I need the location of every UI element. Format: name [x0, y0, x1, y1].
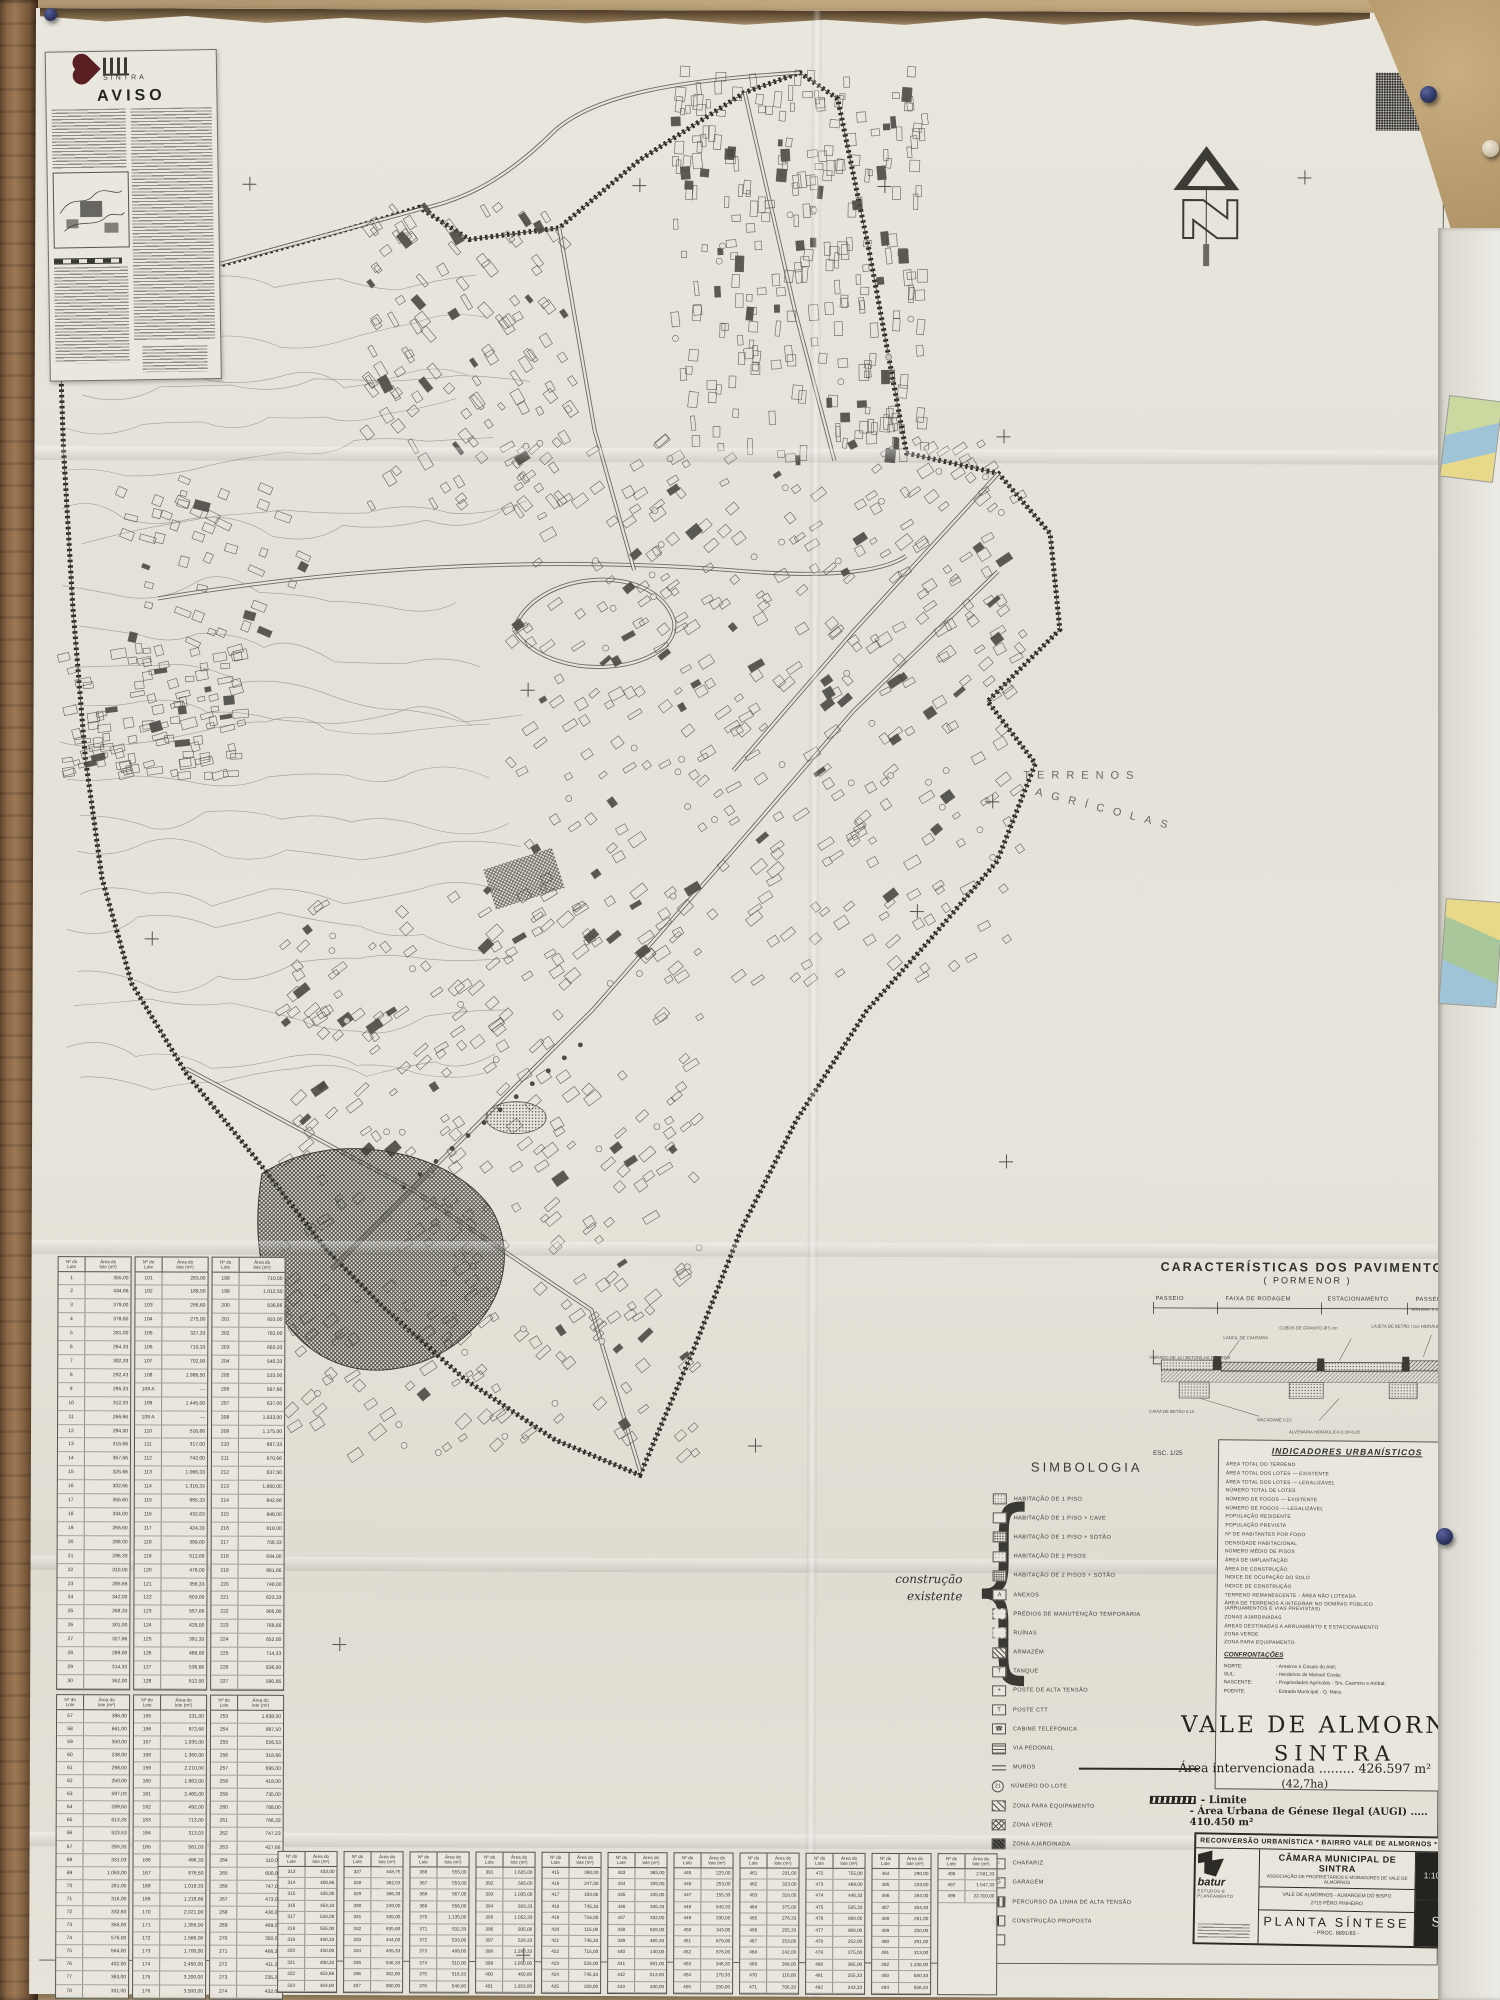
lot-area: 665,33 — [162, 1495, 207, 1508]
lot-number: 321 — [278, 1958, 305, 1969]
lot-table-row: 221623,33 — [211, 1592, 283, 1606]
lot-area: 818,00 — [239, 1523, 284, 1536]
lot-table-row: 469288,00 — [740, 1959, 798, 1971]
lot-number: 269 — [210, 1920, 237, 1932]
lot-number: 499 — [938, 1892, 965, 1903]
lot-number: 464 — [740, 1902, 767, 1913]
lot-area: 22.310,00 — [965, 1892, 996, 1903]
lot-area-table: Nº doLoteÁrea dolote (m²)472755,00473469… — [805, 1853, 865, 1995]
lot-number: 160 — [134, 1775, 161, 1787]
lot-number: 488 — [872, 1914, 899, 1925]
legend-swatch-lines-icon — [992, 1743, 1006, 1754]
lot-table-row: 120478,00 — [135, 1564, 207, 1578]
lot-number: 320 — [278, 1946, 305, 1957]
lot-area: 536,66 — [161, 1661, 206, 1674]
indicator-label: ZONAS AJARDINADAS — [1224, 1615, 1281, 1621]
lot-number: 213 — [212, 1481, 239, 1494]
lot-area: 1.962,00 — [161, 1775, 206, 1787]
lot-table-row: 397528,33 — [476, 1936, 534, 1948]
lot-number: 224 — [211, 1634, 238, 1647]
lot-table-row: 494556,33 — [872, 1983, 930, 1995]
lot-number: 472 — [806, 1868, 833, 1879]
lot-area: 469,00 — [833, 1880, 864, 1891]
lot-table-row: 471706,33 — [740, 1982, 798, 1994]
lot-number: 217 — [212, 1536, 239, 1549]
lot-area-header: Área dolote (m²) — [900, 1854, 931, 1868]
lot-area: 1.035,00 — [161, 1736, 206, 1748]
lot-area: 378,60 — [85, 1313, 130, 1326]
legend-item-label: HABITAÇÃO DE 1 PISO + SÓTÃO — [1014, 1534, 1112, 1540]
lot-area: 313,03 — [161, 1828, 206, 1840]
pavement-note: ALVENARIA HIDRÁULICA 0,30×0,20 — [1289, 1430, 1360, 1435]
lot-area: 411,25 — [237, 1959, 282, 1971]
lot-number: 447 — [674, 1891, 701, 1902]
lot-table-row: 394928,33 — [476, 1901, 534, 1913]
lot-area: 1.547,33 — [965, 1880, 996, 1891]
legend-swatch-muro-icon — [992, 1765, 1006, 1770]
lot-number: 423 — [542, 1959, 569, 1970]
lot-table-row: 4921.238,00 — [872, 1960, 930, 1972]
lot-table-row: 317528,00 — [278, 1912, 336, 1924]
lot-table-row: 376548,00 — [410, 1981, 468, 1993]
lot-number: 266 — [210, 1880, 237, 1892]
legend-item-label: ARMAZÉM — [1013, 1650, 1044, 1656]
lot-number-header: Nº doLote — [211, 1696, 238, 1710]
lot-number: 449 — [674, 1913, 701, 1924]
lot-area: 3.500,00 — [160, 1985, 205, 1997]
lot-area: 288,00 — [85, 1536, 130, 1549]
legend-item: PERCURSO DA LINHA DE ALTA TENSÃO — [991, 1892, 1221, 1912]
lot-number: 267 — [210, 1893, 237, 1905]
lot-area: 327,66 — [84, 1633, 129, 1646]
lot-area: 450,00 — [305, 1946, 336, 1957]
lot-table-row: 375516,33 — [410, 1970, 468, 1982]
lot-table-row: 440140,00 — [608, 1947, 666, 1959]
lot-number: 108 A — [135, 1383, 162, 1396]
lot-area: 652,00 — [238, 1634, 283, 1647]
lot-table-row: 8292,43 — [58, 1369, 130, 1383]
indicator-label: ÍNDICE DE CONSTRUÇÃO — [1225, 1584, 1292, 1590]
brace-label-line1: construção — [892, 1571, 962, 1588]
lot-number: 445 — [674, 1868, 701, 1879]
lot-table-row: 70281,00 — [56, 1880, 128, 1893]
lot-number: 176 — [133, 1985, 160, 1997]
lot-area: 908,00 — [833, 1914, 864, 1925]
lot-number: 58 — [57, 1723, 84, 1735]
lot-table-row: 223768,66 — [211, 1620, 283, 1634]
lot-number: 473 — [806, 1880, 833, 1891]
lot-number: 436 — [608, 1902, 635, 1913]
lot-table-row: 219881,66 — [212, 1564, 284, 1578]
lot-area: 189,50 — [162, 1286, 207, 1299]
lot-number: 415 — [542, 1867, 569, 1878]
lot-number: 109 — [135, 1397, 162, 1410]
white-side-panel — [1438, 228, 1500, 2000]
aviso-paragraph — [52, 108, 127, 169]
lot-table-row: 227590,66 — [211, 1675, 283, 1689]
lot-number: 62 — [57, 1775, 84, 1787]
lot-number: 258 — [211, 1776, 238, 1788]
lot-number: 4 — [58, 1313, 85, 1326]
legend-item-label: TANQUE — [1013, 1669, 1038, 1675]
lot-area: 1.316,33 — [162, 1481, 207, 1494]
lot-area: 330,00 — [701, 1914, 732, 1925]
lot-table-row: 122603,00 — [134, 1592, 206, 1606]
lot-number: 112 — [135, 1453, 162, 1466]
lot-number: 399 — [476, 1958, 503, 1969]
lot-table-row: 203660,33 — [212, 1342, 284, 1356]
lot-table-row: 109 A— — [135, 1411, 207, 1425]
lot-area: 225,00 — [701, 1868, 732, 1879]
lot-number: 157 — [134, 1736, 161, 1748]
lot-area: 1.638,00 — [238, 1710, 283, 1722]
lot-area: 716,00 — [569, 1913, 600, 1924]
lot-table-row: 67293,33 — [57, 1841, 129, 1854]
lot-table-row: 5281,00 — [58, 1327, 130, 1341]
lot-table-row: 400460,00 — [476, 1970, 534, 1982]
lot-number: 163 — [134, 1815, 161, 1827]
lot-area: 352,00 — [84, 1675, 129, 1688]
pavement-section-label: ESTACIONAMENTO — [1327, 1297, 1388, 1303]
lot-number: 434 — [608, 1879, 635, 1890]
lot-number: 481 — [806, 1971, 833, 1982]
lot-number: 71 — [56, 1893, 83, 1905]
lot-table-row: 372533,00 — [410, 1935, 468, 1947]
lot-table-row: 1763.500,00 — [133, 1985, 205, 1998]
lot-table-row: 470116,00 — [740, 1971, 798, 1983]
legend-item-label: PRÉDIOS DE MANUTENÇÃO TEMPORÁRIA — [1013, 1611, 1140, 1617]
legend-swatch-dots-icon — [993, 1551, 1007, 1562]
lot-area-table: Nº doLoteÁrea dolote (m²)433365,00434335… — [607, 1852, 667, 1994]
lot-table-row: 367553,00 — [410, 1878, 468, 1890]
lot-area: 325,66 — [85, 1466, 130, 1479]
lot-area: 290,00 — [701, 1982, 732, 1993]
lot-table-row: 322453,66 — [278, 1969, 336, 1981]
lot-table-row: 104275,00 — [135, 1314, 207, 1328]
lot-number-header: Nº doLote — [939, 1854, 966, 1868]
lot-table-row: 124428,00 — [134, 1620, 206, 1634]
lot-table-row: 320450,00 — [278, 1946, 336, 1958]
lot-table-row: 2081.633,00 — [212, 1411, 284, 1425]
lot-area: 380,00 — [569, 1867, 600, 1878]
lot-number: 11 — [58, 1411, 85, 1424]
lot-number: 219 — [212, 1564, 239, 1577]
pavement-note: VIBRADO DE 12 / BETONILHA DE AREIA — [1149, 1356, 1230, 1361]
lot-table-row: 126468,00 — [134, 1647, 206, 1661]
lot-number: 57 — [57, 1710, 84, 1722]
lot-number-header: Nº doLote — [411, 1852, 438, 1866]
lot-area: 354,33 — [899, 1903, 930, 1914]
lot-number: 255 — [211, 1736, 238, 1748]
lot-table-row: 416247,00 — [542, 1879, 600, 1891]
lot-number: 20 — [58, 1536, 85, 1549]
indicator-label: NÚMERO TOTAL DE LOTES — [1226, 1489, 1296, 1495]
lot-area: 876,50 — [160, 1867, 205, 1879]
lot-number: 271 — [210, 1946, 237, 1958]
lot-area: 1.445,00 — [162, 1397, 207, 1410]
lot-table-row: 1592.210,00 — [134, 1762, 206, 1775]
lot-number: 450 — [674, 1925, 701, 1936]
lot-area: 313,00 — [899, 1948, 930, 1959]
lot-area: 250,00 — [899, 1926, 930, 1937]
lot-table-row: 1991.012,50 — [212, 1286, 284, 1300]
lot-area: 427,66 — [238, 1841, 283, 1853]
lot-area: 233,00 — [899, 1880, 930, 1891]
lot-table-row: 484290,00 — [872, 1868, 930, 1880]
pavement-note: CUBOS DE GRANITO Ø 5 cm — [1279, 1326, 1337, 1331]
lot-number: 127 — [134, 1661, 161, 1674]
lot-number: 336 — [344, 1969, 371, 1980]
lot-area: 553,00 — [437, 1878, 468, 1889]
indicator-label: ÁREA TOTAL DOS LOTES — EXISTENTE — [1226, 1471, 1329, 1477]
lot-area-table: Nº doLoteÁrea dolote (m²)3911.625,003925… — [475, 1852, 535, 1994]
lot-area: 928,33 — [503, 1901, 534, 1912]
lot-number-header: Nº doLote — [873, 1854, 900, 1868]
lot-number: 16 — [58, 1480, 85, 1493]
lot-area: 512,66 — [162, 1550, 207, 1563]
lot-area: 1.986,50 — [162, 1369, 207, 1382]
lot-area: 465,33 — [635, 1936, 666, 1947]
lot-table-row: 392585,00 — [476, 1879, 534, 1891]
lot-number: 59 — [57, 1736, 84, 1748]
lot-area: 335,33 — [635, 1902, 666, 1913]
lot-table-row: 334485,33 — [344, 1946, 402, 1958]
lot-table-row: 57386,00 — [57, 1710, 129, 1723]
lot-number: 206 — [212, 1383, 239, 1396]
lot-area: 285,66 — [84, 1578, 129, 1591]
lot-number: 327 — [344, 1867, 371, 1878]
legend-swatch-glyphA-icon: A — [992, 1589, 1006, 1600]
lot-area: 872,66 — [161, 1723, 206, 1735]
lot-number: 322 — [278, 1969, 305, 1980]
lot-table-row: 123557,66 — [134, 1606, 206, 1620]
lot-area-header: Área dolote (m²) — [238, 1696, 283, 1710]
lot-number: 207 — [212, 1397, 239, 1410]
lot-area: 782,00 — [239, 1328, 284, 1341]
lot-number: 264 — [211, 1854, 238, 1866]
indicator-label: ÁREA DE TERRENOS A INTEGRAR NO DOMÍNIO P… — [1224, 1602, 1399, 1614]
lot-number: 205 — [212, 1370, 239, 1383]
lot-number: 323 — [278, 1980, 305, 1991]
aviso-paragraph — [131, 107, 216, 340]
lot-area: 836,00 — [238, 1662, 283, 1675]
lot-number: 419 — [542, 1913, 569, 1924]
lot-area: 478,00 — [162, 1564, 207, 1577]
lot-area-header: Área dolote (m²) — [702, 1853, 733, 1867]
batur-address — [1198, 1923, 1250, 1940]
lot-number: 469 — [740, 1959, 767, 1970]
lot-area: 365,00 — [833, 1960, 864, 1971]
lot-area: 425,00 — [305, 1889, 336, 1900]
underlying-colored-map — [1438, 898, 1500, 1008]
lot-number: 448 — [674, 1902, 701, 1913]
lot-number: 397 — [476, 1936, 503, 1947]
lot-area: 418,00 — [238, 1776, 283, 1788]
lot-table-row: 76402,00 — [56, 1958, 128, 1971]
lot-table-row: 17355,60 — [58, 1494, 130, 1508]
lot-number: 221 — [211, 1592, 238, 1605]
legend-swatch-hatch2-icon — [992, 1800, 1006, 1811]
lot-area: 533,00 — [437, 1935, 468, 1946]
lot-area: 555,00 — [437, 1867, 468, 1878]
lot-area: 1.018,33 — [160, 1880, 205, 1892]
lot-number: 211 — [212, 1453, 239, 1466]
lot-number: 265 — [210, 1867, 237, 1879]
lot-area-table: Nº doLoteÁrea dolote (m²)366555,00367553… — [409, 1851, 469, 1993]
lot-area: 391,33 — [161, 1634, 206, 1647]
lot-area-header: Área dolote (m²) — [240, 1258, 285, 1272]
lot-area-table: Nº doLoteÁrea dolote (m²)415380,00416247… — [541, 1852, 601, 1994]
indicator-label: TERRENO REMANESCENTE - ÁREA NÃO LOTEADA — [1225, 1593, 1356, 1599]
lot-number: 209 — [212, 1425, 239, 1438]
lot-table-row: 220740,00 — [211, 1578, 283, 1592]
lot-area: 747,00 — [237, 1880, 282, 1892]
lot-number: 214 — [212, 1495, 239, 1508]
lot-table-row: 1141.316,33 — [135, 1481, 207, 1495]
lot-area-header: Área dolote (m²) — [163, 1257, 208, 1271]
lot-number: 13 — [58, 1439, 85, 1452]
lot-area: 1.135,00 — [437, 1913, 468, 1924]
lot-table-row: 1753.200,00 — [133, 1972, 205, 1985]
lot-number: 318 — [278, 1923, 305, 1934]
legend-item-label: HABITAÇÃO DE 1 PISO — [1014, 1496, 1082, 1502]
indicator-label: NÚMERO DE FOGOS — EXISTENTE — [1226, 1497, 1318, 1503]
lot-number: 496 — [938, 1869, 965, 1880]
lot-table-row: 2531.638,00 — [211, 1710, 283, 1723]
lot-area: 332,00 — [635, 1913, 666, 1924]
legend-item — [991, 1931, 1221, 1951]
lot-table-row: 442513,00 — [608, 1970, 666, 1982]
lot-table-row: 415380,00 — [542, 1867, 600, 1879]
lot-number: 392 — [476, 1879, 503, 1890]
lot-area: 1.356,00 — [160, 1920, 205, 1932]
lot-area: 170,33 — [701, 1971, 732, 1982]
lot-table-row: 3981.280,33 — [476, 1947, 534, 1959]
lot-area: 516,66 — [162, 1425, 207, 1438]
lot-area: 365,00 — [635, 1868, 666, 1879]
lot-area: 294,00 — [85, 1425, 130, 1438]
intervened-area-hectares: (42,7ha) — [1125, 1777, 1485, 1791]
legend-item-label: VIA PEDONAL — [1013, 1745, 1054, 1751]
lot-table-row: 480365,00 — [806, 1960, 864, 1972]
lot-number: 482 — [806, 1982, 833, 1993]
lot-area: 343,33 — [833, 1982, 864, 1993]
lot-area: 1.053,00 — [503, 1981, 534, 1992]
lot-number: 225 — [211, 1648, 238, 1661]
lot-number: 223 — [211, 1620, 238, 1633]
limit-row: - Limite — [1150, 1794, 1452, 1807]
lot-table-row: 115665,33 — [135, 1494, 207, 1508]
lot-area: 1.012,50 — [239, 1286, 284, 1299]
lot-table-row: 58661,00 — [57, 1723, 129, 1736]
pavement-subtitle: ( PORMENOR ) — [1140, 1275, 1476, 1286]
lot-area: 745,33 — [569, 1970, 600, 1981]
lot-number: 401 — [476, 1981, 503, 1992]
lot-area: 1.625,00 — [503, 1867, 534, 1878]
lot-number: 109 A — [135, 1411, 162, 1424]
lot-area: 312,33 — [85, 1397, 130, 1410]
lot-number: 328 — [344, 1878, 371, 1889]
lot-area: 386,00 — [84, 1710, 129, 1722]
lot-area-header: Área dolote (m²) — [966, 1854, 997, 1868]
lot-number-header: Nº doLote — [279, 1852, 306, 1866]
lot-area: 360,00 — [371, 1981, 402, 1992]
sintra-heart-icon — [75, 56, 100, 81]
lot-number: 479 — [806, 1948, 833, 1959]
lot-table-row: 226836,00 — [211, 1662, 283, 1676]
indicator-label: ZONA PARA EQUIPAMENTO — [1224, 1640, 1295, 1646]
legend-item-label: ZONA PARA EQUIPAMENTO — [1013, 1803, 1095, 1809]
lot-number: 76 — [56, 1958, 83, 1970]
lot-table-row: 490291,00 — [872, 1937, 930, 1949]
lot-area-header: Área dolote (m²) — [768, 1854, 799, 1868]
lot-table-row: 255526,53 — [211, 1736, 283, 1749]
legend-item: +POSTE DE ALTA TENSÃO — [992, 1681, 1222, 1701]
lot-number: 120 — [135, 1564, 162, 1577]
lot-area: 836,66 — [239, 1300, 284, 1313]
lot-number: 67 — [57, 1841, 84, 1853]
lot-number: 476 — [806, 1914, 833, 1925]
lot-number: 257 — [211, 1763, 238, 1775]
legend-item: PRÉDIOS DE MANUTENÇÃO TEMPORÁRIA — [992, 1604, 1222, 1624]
lot-area: 160,00 — [569, 1981, 600, 1992]
lot-table-row: 14367,66 — [58, 1452, 130, 1466]
lot-table-row: 321490,33 — [278, 1958, 336, 1970]
lot-table-row: 263427,66 — [211, 1841, 283, 1854]
lot-number: 441 — [608, 1959, 635, 1970]
lot-number: 369 — [410, 1901, 437, 1912]
sintra-logo-text: SINTRA — [103, 74, 147, 82]
lot-area: 316,00 — [83, 1893, 128, 1905]
legend-brace-label: construção existente — [892, 1571, 962, 1605]
lot-number: 69 — [56, 1867, 83, 1879]
pavement-note: MACADAME 0,10 — [1257, 1418, 1291, 1423]
lot-table-row: 479375,00 — [806, 1948, 864, 1960]
lot-number: 463 — [740, 1891, 767, 1902]
lot-table-row: 212637,50 — [212, 1467, 284, 1481]
lot-table-row: 207637,00 — [212, 1397, 284, 1411]
lot-area: 480,33 — [305, 1935, 336, 1946]
pavement-section-label: PASSEIO — [1155, 1296, 1184, 1302]
lot-area: 318,00 — [767, 1891, 798, 1902]
lot-number: 367 — [410, 1878, 437, 1889]
lot-area: 597,03 — [84, 1788, 129, 1800]
legend-item: TTANQUE — [992, 1662, 1222, 1682]
lot-table-row: 271466,33 — [210, 1946, 282, 1959]
lot-number: 61 — [57, 1762, 84, 1774]
lot-area: 905,00 — [238, 1606, 283, 1619]
lot-number: 173 — [133, 1946, 160, 1958]
lot-area: 2.021,00 — [160, 1906, 205, 1918]
lot-number: 337 — [344, 1981, 371, 1992]
lot-area: 334,00 — [85, 1508, 130, 1521]
lot-area-header: Área dolote (m²) — [834, 1854, 865, 1868]
lot-number: 5 — [58, 1327, 85, 1340]
lot-area: 231,00 — [767, 1868, 798, 1879]
lot-number: 454 — [674, 1970, 701, 1981]
lot-area: 362,00 — [371, 1969, 402, 1980]
lot-table-row: 489250,00 — [872, 1926, 930, 1938]
confrontation-text: - Herdeiros de Manuel Costa; — [1276, 1672, 1341, 1679]
lot-table-row: 371532,33 — [410, 1924, 468, 1936]
lot-area: 876,00 — [701, 1948, 732, 1959]
lot-number: 156 — [134, 1723, 161, 1735]
lot-number: 167 — [133, 1867, 160, 1879]
lot-table-row: 224652,00 — [211, 1634, 283, 1648]
lot-area: 375,00 — [833, 1948, 864, 1959]
lot-table-row: 205533,00 — [212, 1370, 284, 1384]
lot-area: 505,33 — [833, 1903, 864, 1914]
